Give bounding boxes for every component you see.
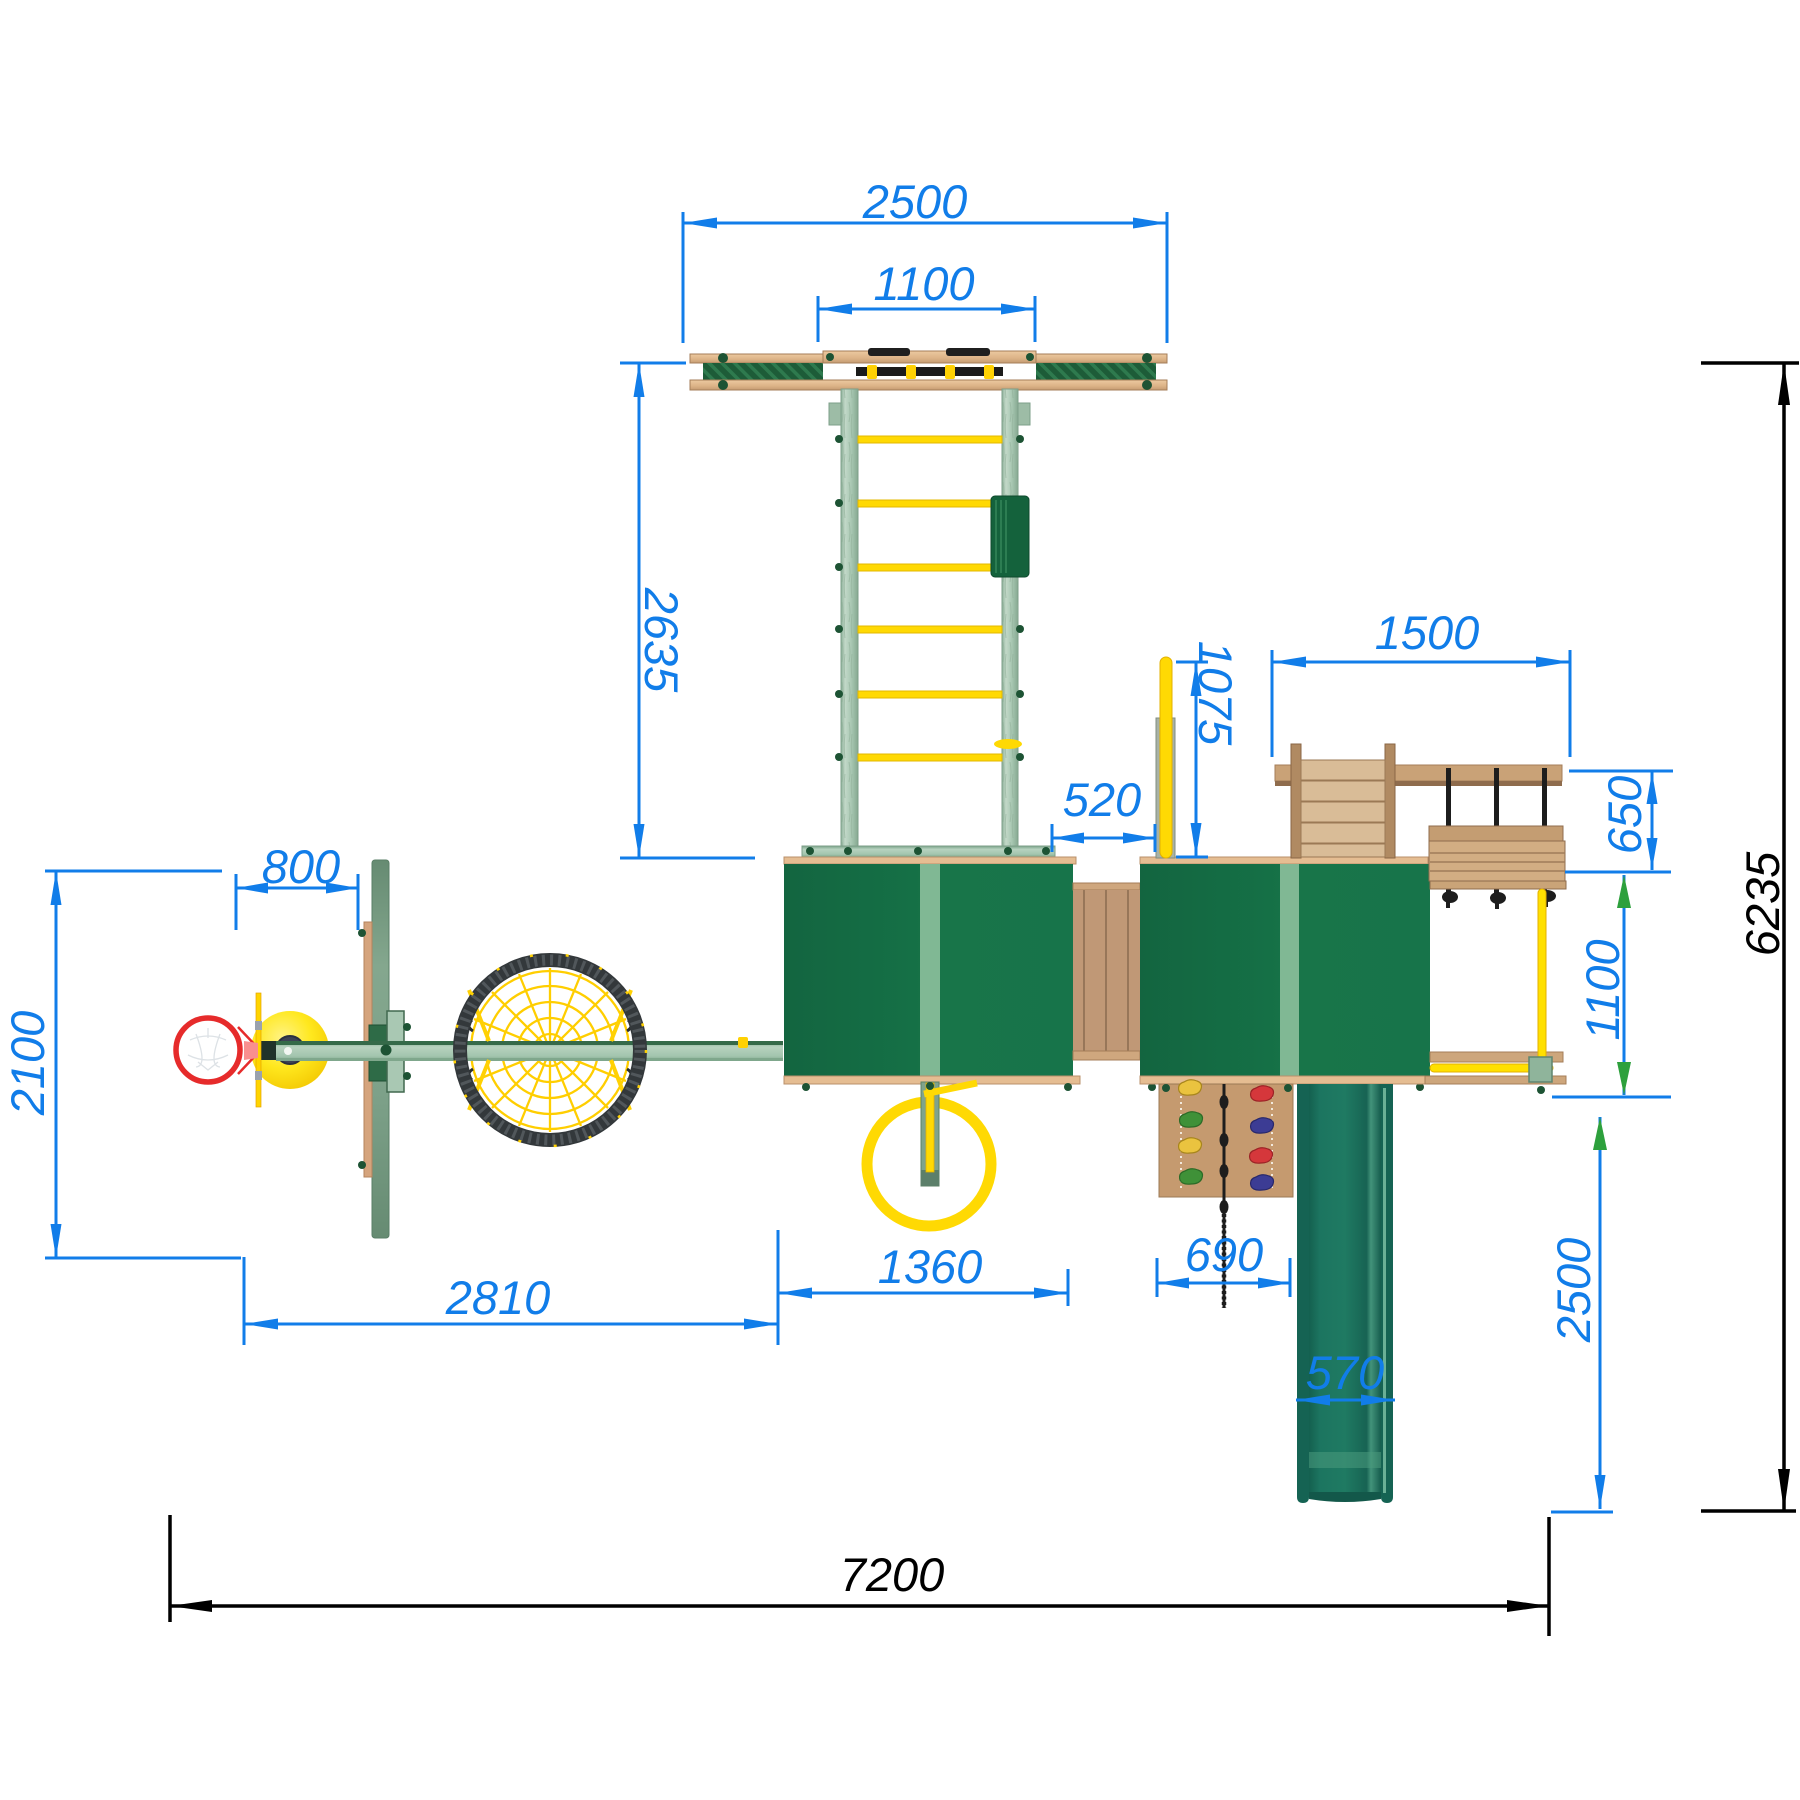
svg-text:2810: 2810 xyxy=(445,1271,551,1324)
svg-text:650: 650 xyxy=(1598,776,1651,854)
svg-text:1100: 1100 xyxy=(1576,939,1629,1040)
svg-text:2635: 2635 xyxy=(635,587,688,693)
svg-text:6235: 6235 xyxy=(1736,851,1789,956)
svg-text:800: 800 xyxy=(262,840,340,893)
svg-text:7200: 7200 xyxy=(840,1548,945,1601)
svg-text:690: 690 xyxy=(1185,1228,1263,1281)
svg-text:2500: 2500 xyxy=(862,175,968,228)
svg-text:520: 520 xyxy=(1063,773,1141,826)
svg-text:570: 570 xyxy=(1306,1346,1384,1399)
svg-text:2100: 2100 xyxy=(1,1011,54,1117)
svg-text:1360: 1360 xyxy=(878,1240,983,1293)
svg-text:1500: 1500 xyxy=(1375,606,1480,659)
svg-text:1100: 1100 xyxy=(873,257,974,310)
svg-text:1075: 1075 xyxy=(1189,641,1242,746)
svg-text:2500: 2500 xyxy=(1547,1238,1600,1344)
